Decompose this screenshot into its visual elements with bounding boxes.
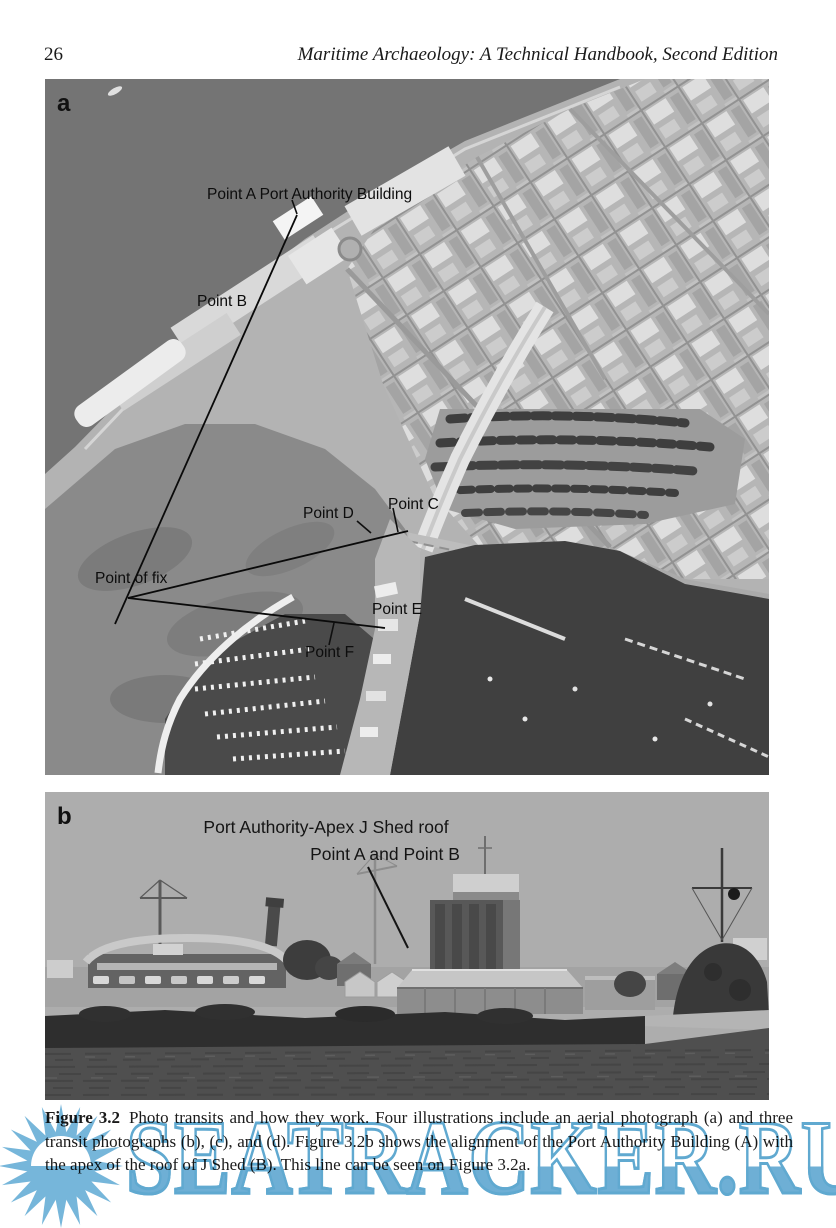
- transit-photo-panel-b: b Port Authority-Apex J Shed roof Point …: [45, 792, 769, 1100]
- aerial-photo-panel-a: a Point A Port Authority Building Point …: [45, 79, 769, 775]
- building-sign: [153, 944, 183, 955]
- roundabout: [339, 238, 361, 260]
- running-title: Maritime Archaeology: A Technical Handbo…: [298, 44, 778, 66]
- label-point-of-fix: Point of fix: [95, 570, 168, 587]
- label-point-b: Point B: [197, 293, 247, 310]
- seawall-bush: [195, 1004, 255, 1020]
- page-number: 26: [44, 44, 63, 66]
- boat: [708, 702, 713, 707]
- figure-caption: Figure 3.2Photo transits and how they wo…: [45, 1106, 793, 1177]
- boat: [523, 717, 528, 722]
- transit-photo-graphic: b Port Authority-Apex J Shed roof Point …: [45, 792, 769, 1100]
- label-point-c: Point C: [388, 496, 439, 513]
- label-point-e: Point E: [372, 601, 422, 618]
- tree-row: [465, 511, 645, 515]
- label-point-f: Point F: [305, 644, 354, 661]
- figure-caption-body: Photo transits and how they work. Four i…: [45, 1108, 793, 1174]
- small-house: [47, 960, 73, 978]
- shed: [373, 654, 391, 664]
- label-point-a: Point A Port Authority Building: [207, 186, 412, 203]
- label-transit-line1: Port Authority-Apex J Shed roof: [203, 817, 448, 837]
- label-transit-line2: Point A and Point B: [310, 844, 460, 864]
- panel-b-letter: b: [57, 803, 72, 830]
- mound-shadow: [729, 979, 751, 1001]
- seawall-bush: [477, 1008, 533, 1024]
- shed: [378, 619, 398, 631]
- seawall-bush: [79, 1006, 131, 1022]
- label-point-d: Point D: [303, 505, 354, 522]
- tree: [614, 971, 646, 997]
- boat: [573, 687, 578, 692]
- boat: [488, 677, 493, 682]
- book-page: { "page": { "number": "26", "running_tit…: [0, 0, 836, 1228]
- aerial-photo-graphic: a Point A Port Authority Building Point …: [45, 79, 769, 775]
- j-shed: [397, 970, 583, 1014]
- window-strip: [97, 963, 277, 970]
- boat: [653, 737, 658, 742]
- shed: [366, 691, 386, 701]
- seawall-bush: [335, 1006, 395, 1022]
- mound-shadow: [704, 963, 722, 981]
- figure-caption-label: Figure 3.2: [45, 1108, 120, 1127]
- shed: [360, 727, 378, 737]
- panel-a-letter: a: [57, 90, 71, 117]
